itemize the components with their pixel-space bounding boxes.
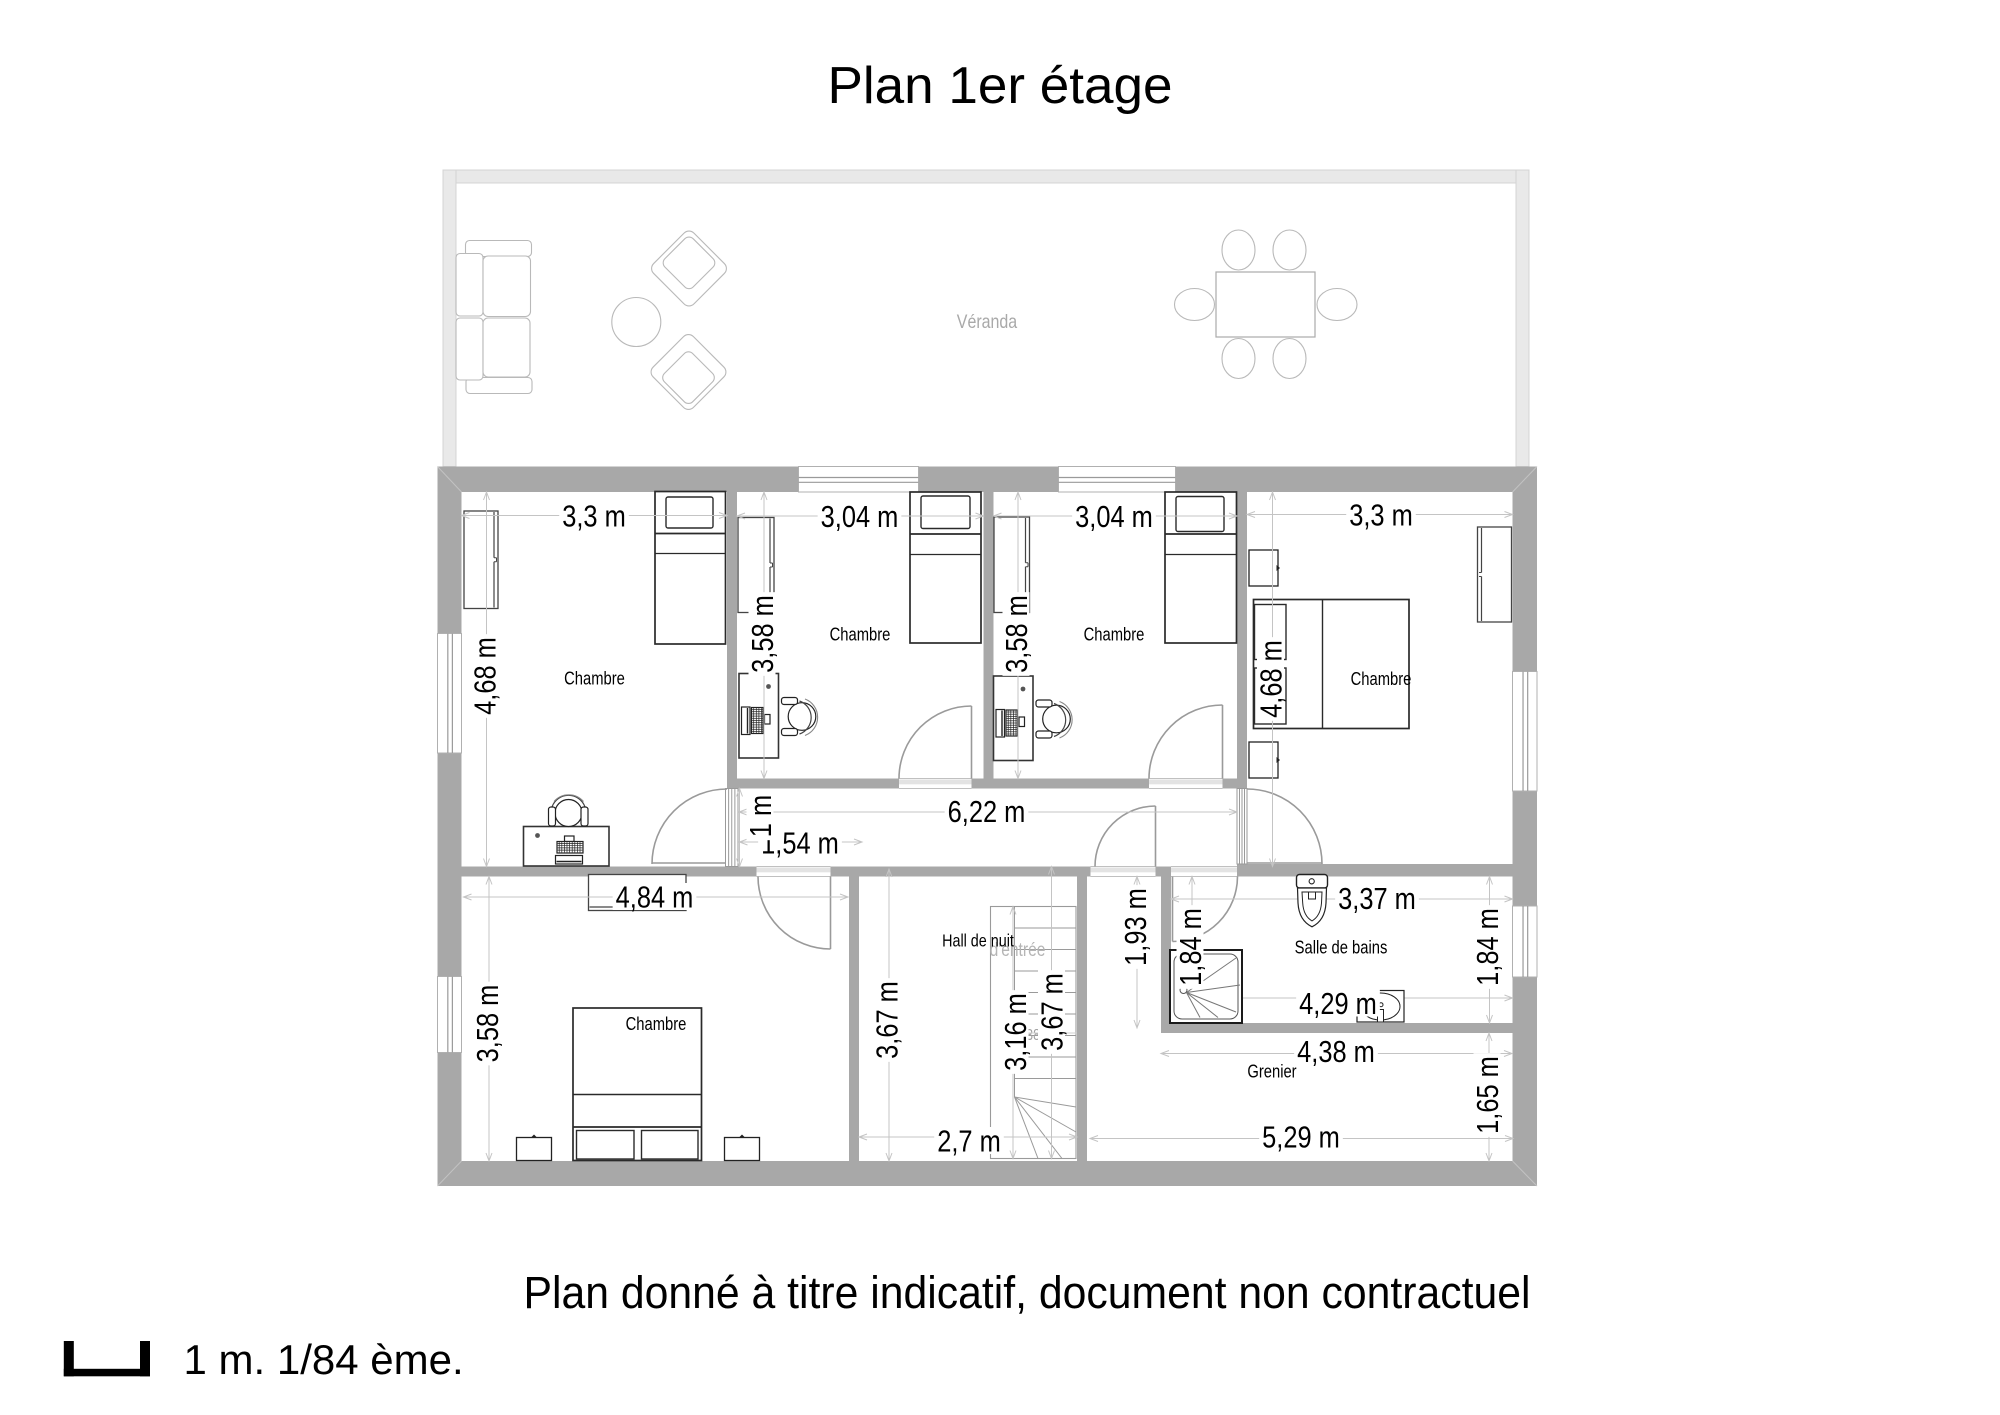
svg-text:3,67 m: 3,67 m — [870, 981, 905, 1059]
svg-text:3,04 m: 3,04 m — [821, 499, 899, 534]
svg-text:Plan 1er étage: Plan 1er étage — [828, 57, 1173, 115]
svg-text:3,58 m: 3,58 m — [745, 595, 780, 673]
svg-text:Chambre: Chambre — [1351, 669, 1412, 689]
svg-text:1,84 m: 1,84 m — [1173, 908, 1208, 986]
svg-text:3,67 m: 3,67 m — [1035, 973, 1070, 1051]
svg-text:4,84 m: 4,84 m — [616, 880, 694, 915]
svg-text:Salle de bains: Salle de bains — [1295, 938, 1388, 958]
svg-text:1,84 m: 1,84 m — [1470, 908, 1505, 986]
svg-text:3,37 m: 3,37 m — [1338, 881, 1416, 916]
svg-text:1 m: 1 m — [743, 795, 778, 837]
svg-text:1 m. 1/84 ème.: 1 m. 1/84 ème. — [184, 1336, 464, 1383]
svg-text:Chambre: Chambre — [564, 669, 625, 689]
svg-text:3,58 m: 3,58 m — [470, 985, 505, 1063]
svg-text:5,29 m: 5,29 m — [1262, 1120, 1340, 1155]
svg-text:4,29 m: 4,29 m — [1299, 986, 1377, 1021]
svg-text:Hall de nuit: Hall de nuit — [942, 931, 1014, 951]
svg-text:Plan donné à titre indicatif,: Plan donné à titre indicatif, document n… — [524, 1267, 1531, 1318]
svg-text:Chambre: Chambre — [1084, 625, 1145, 645]
svg-text:2,7 m: 2,7 m — [937, 1124, 1001, 1159]
svg-text:Grenier: Grenier — [1247, 1062, 1296, 1082]
svg-text:Chambre: Chambre — [626, 1014, 687, 1034]
svg-text:3,58 m: 3,58 m — [999, 595, 1034, 673]
svg-text:3,16 m: 3,16 m — [998, 993, 1033, 1071]
svg-text:3,04 m: 3,04 m — [1075, 499, 1153, 534]
svg-text:1,93 m: 1,93 m — [1118, 888, 1153, 966]
svg-text:1,65 m: 1,65 m — [1470, 1056, 1505, 1134]
svg-text:Véranda: Véranda — [957, 311, 1018, 333]
svg-text:Chambre: Chambre — [830, 625, 891, 645]
svg-text:3,3 m: 3,3 m — [1349, 498, 1413, 533]
svg-text:3,3 m: 3,3 m — [562, 499, 626, 534]
svg-text:4,38 m: 4,38 m — [1297, 1034, 1375, 1069]
svg-text:4,68 m: 4,68 m — [1254, 640, 1289, 718]
svg-text:6,22 m: 6,22 m — [948, 794, 1026, 829]
svg-text:4,68 m: 4,68 m — [468, 637, 503, 715]
